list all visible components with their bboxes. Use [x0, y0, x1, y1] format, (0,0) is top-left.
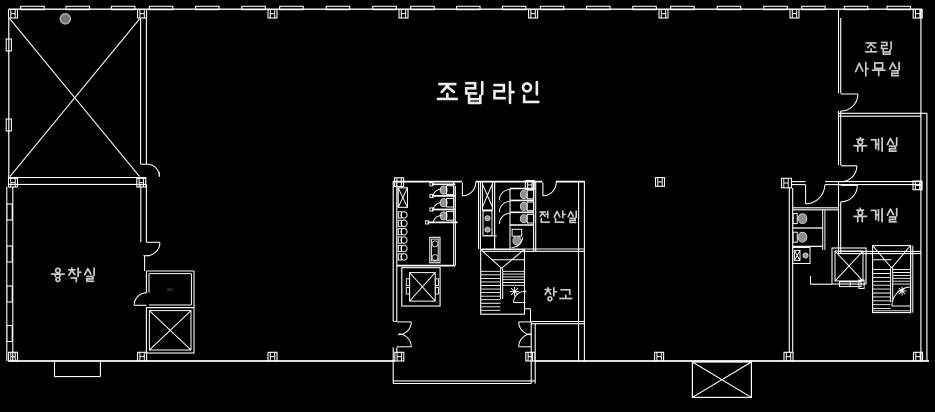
svg-text:EV: EV: [167, 287, 173, 292]
